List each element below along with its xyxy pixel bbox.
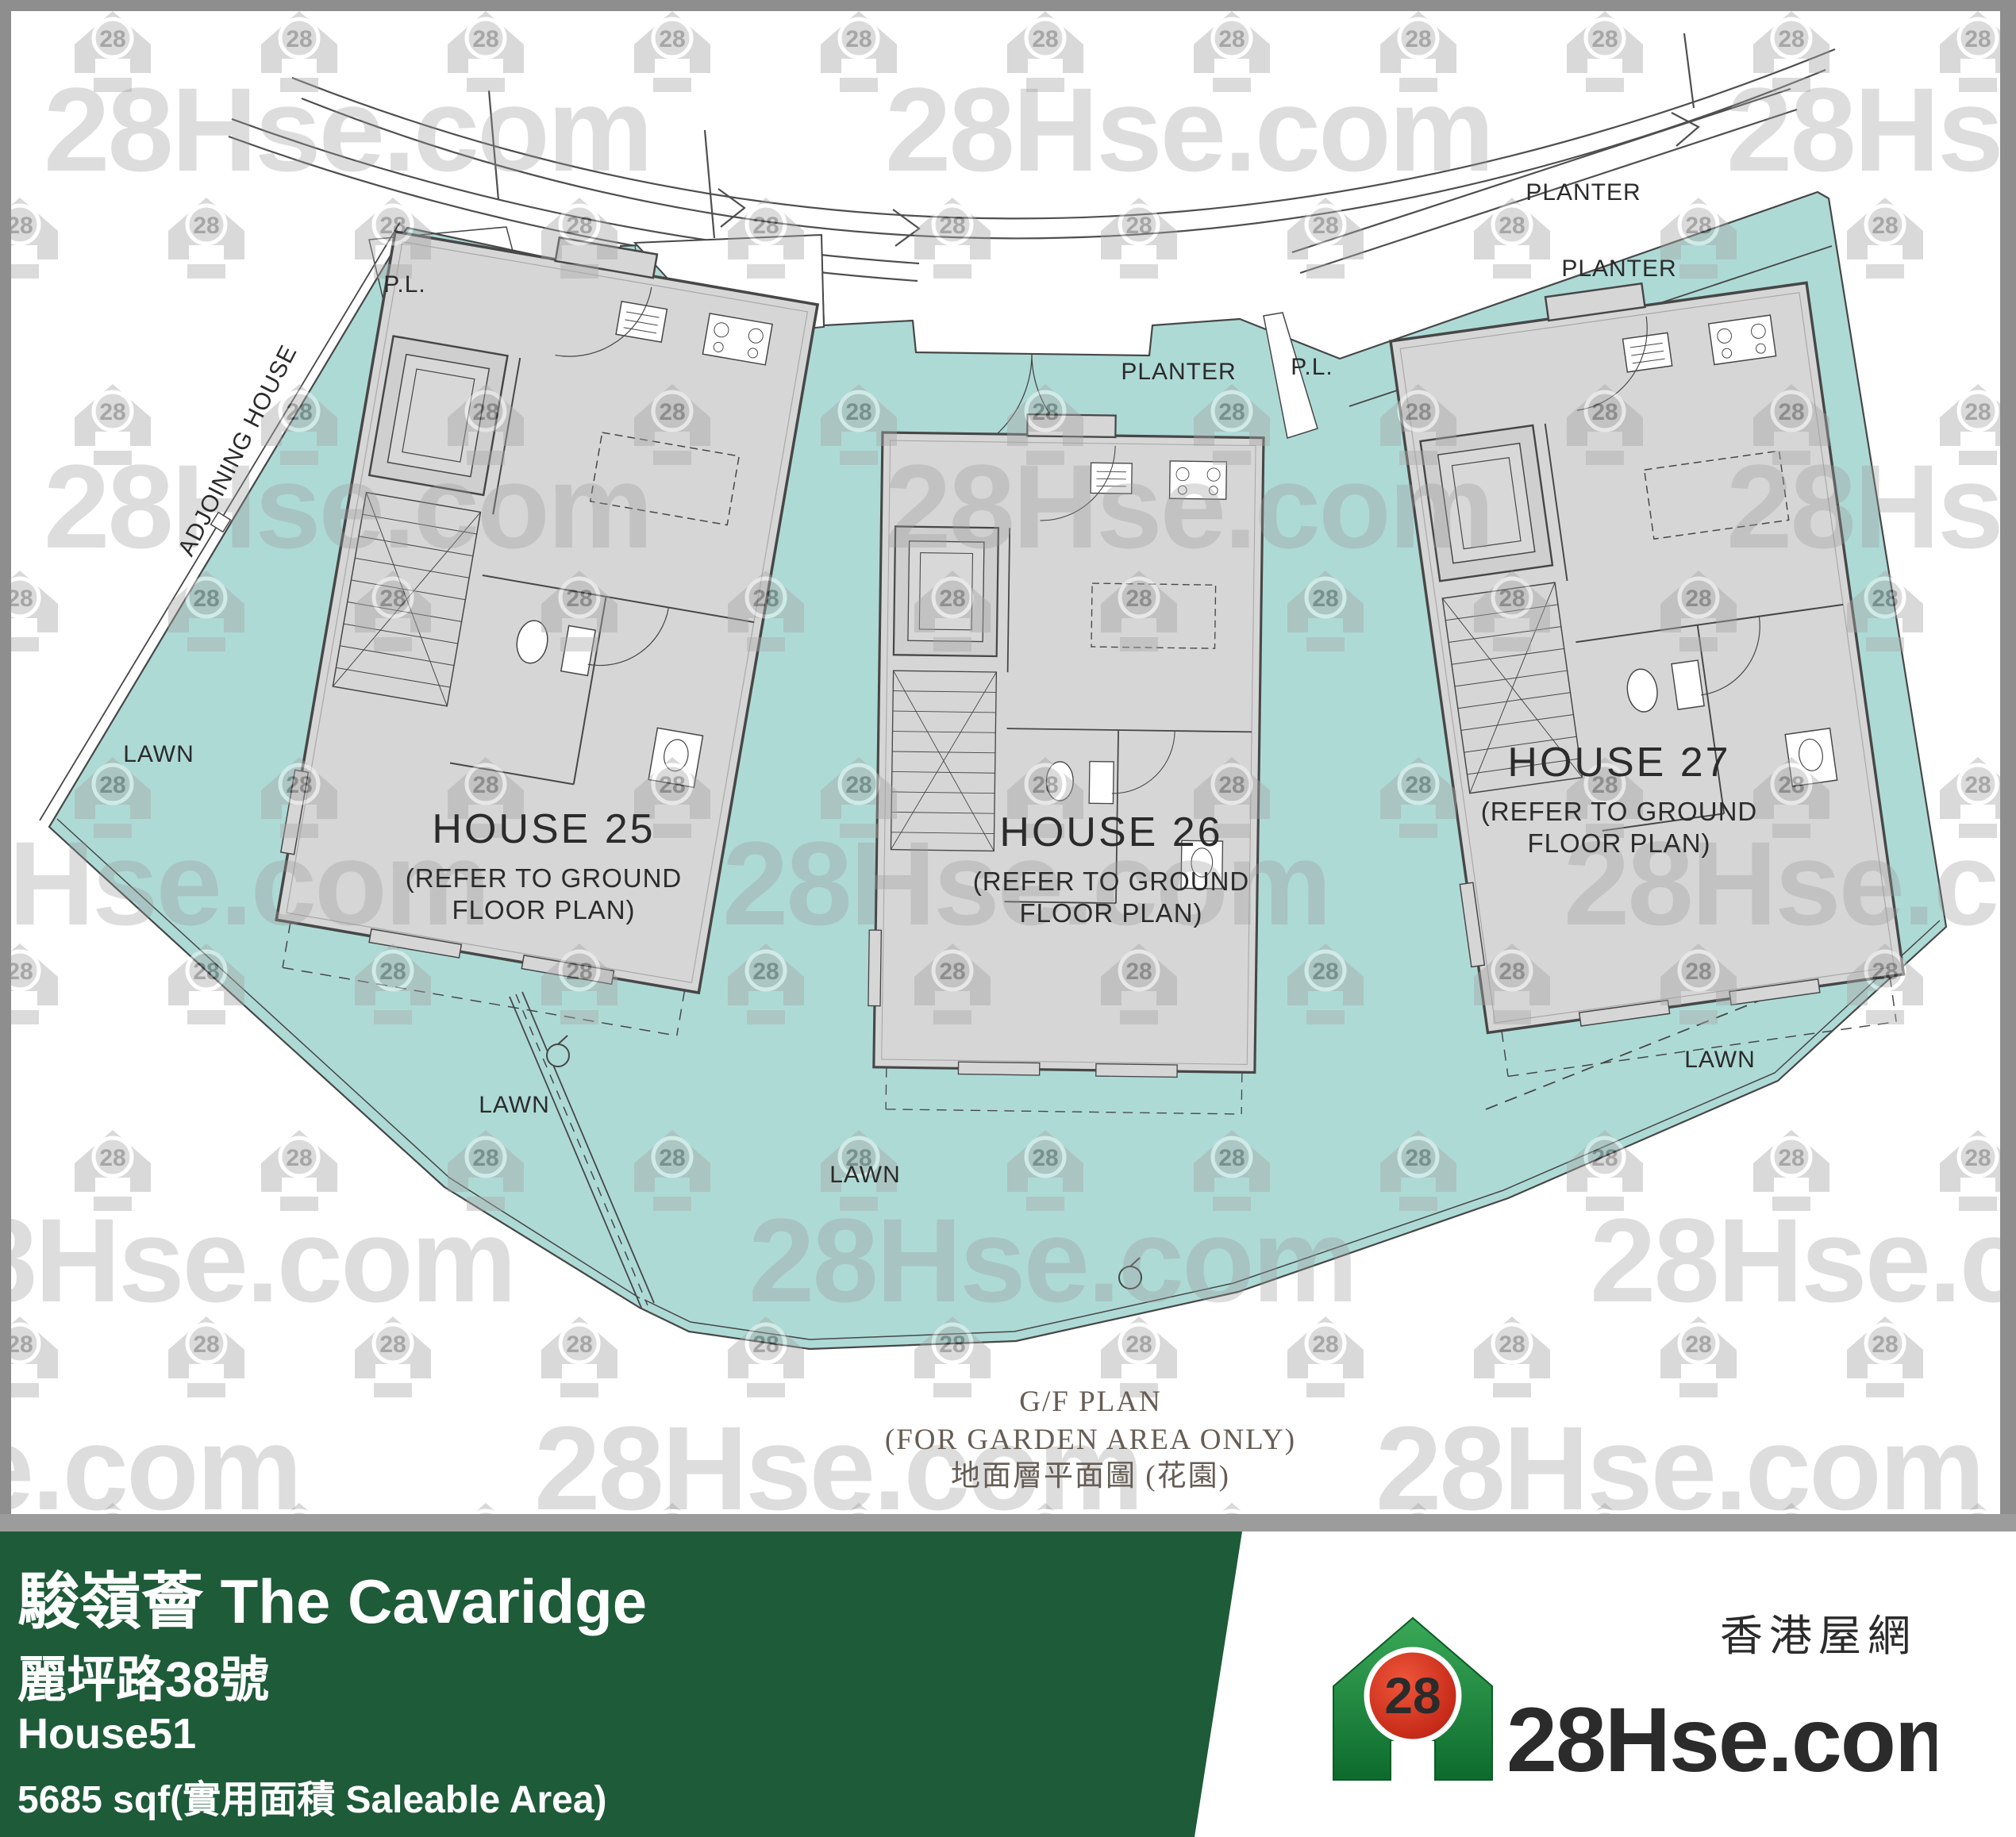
watermark-text: 28Hse.com (748, 1193, 1356, 1327)
planter-label-lower: PLANTER (1561, 256, 1676, 282)
watermark-text: 28Hse.com (1726, 63, 2016, 196)
house-25-label: HOUSE 25 (432, 806, 655, 852)
lawn-label-center: LAWN (829, 1162, 901, 1188)
unit-label: House51 (17, 1709, 196, 1758)
brand-name: 28Hse.com (1506, 1689, 1937, 1791)
floorplan-page: 28 (0, 0, 2016, 1837)
estate-address: 麗坪路38號 (17, 1639, 269, 1711)
pl-label-left: P.L. (383, 271, 426, 298)
caption-line3: 地面層平面圖 (花園) (951, 1460, 1230, 1493)
watermark-text: 28Hse.com (1726, 440, 2016, 573)
house-27-note: FLOOR PLAN) (1527, 828, 1710, 858)
watermark-text: 28Hse.com (885, 63, 1492, 196)
saleable-area-label: 5685 sqf(實用面積 Saleable Area) (17, 1768, 607, 1824)
brand-tagline: 香港屋網 (1720, 1612, 1917, 1660)
planter-label-upper: PLANTER (1525, 179, 1641, 206)
logo-badge-text: 28 (1384, 1667, 1441, 1724)
lawn-label-left: LAWN (123, 741, 194, 767)
house-26-note: FLOOR PLAN) (1019, 898, 1202, 928)
house-25-note: (REFER TO GROUND (406, 863, 682, 893)
plan-footer-divider (0, 1514, 2016, 1531)
lawn-label-right: LAWN (1684, 1047, 1756, 1073)
house-27-label: HOUSE 27 (1507, 740, 1730, 786)
estate-title: 駿嶺薈 The Cavaridge (17, 1552, 647, 1641)
lawn-label-house25: LAWN (479, 1092, 550, 1118)
house-26-label: HOUSE 26 (999, 809, 1222, 855)
watermark-text: 28Hse.com (44, 440, 651, 573)
watermark-text: 28Hse.com (44, 63, 651, 196)
house-25-note: FLOOR PLAN) (452, 895, 635, 924)
house-26-note: (REFER TO GROUND (973, 867, 1249, 896)
caption-line2: (FOR GARDEN AREA ONLY) (885, 1424, 1296, 1456)
house-27-note: (REFER TO GROUND (1481, 797, 1757, 826)
plan-border-top (0, 0, 2016, 11)
plan-border-right (2000, 0, 2016, 1531)
pl-label-right: P.L. (1291, 354, 1333, 380)
logo-house-icon: 28 (1333, 1618, 1492, 1780)
watermark-text: 28Hse.com (885, 440, 1492, 573)
plan-border-left (0, 0, 11, 1531)
caption-line1: G/F PLAN (1019, 1385, 1161, 1418)
watermark-text: 28Hse.com (1590, 1193, 2016, 1327)
watermark-text: 28Hse.com (0, 1193, 514, 1327)
brand-logo: 28 28Hse.com 香港屋網 (1302, 1587, 1937, 1825)
planter-label-mid: PLANTER (1121, 359, 1236, 385)
